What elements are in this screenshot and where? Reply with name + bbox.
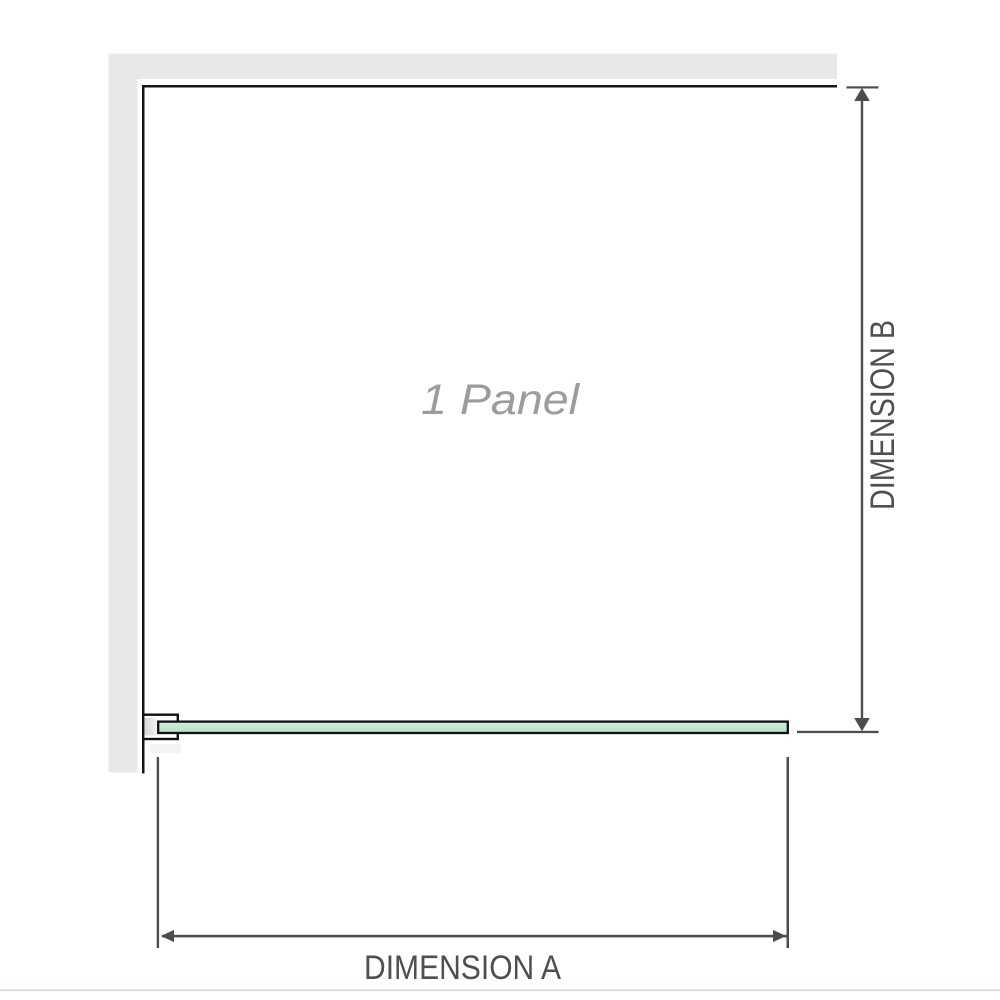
svg-text:DIMENSION B: DIMENSION B <box>864 320 902 510</box>
svg-text:DIMENSION A: DIMENSION A <box>364 949 561 987</box>
svg-text:1 Panel: 1 Panel <box>421 376 581 424</box>
